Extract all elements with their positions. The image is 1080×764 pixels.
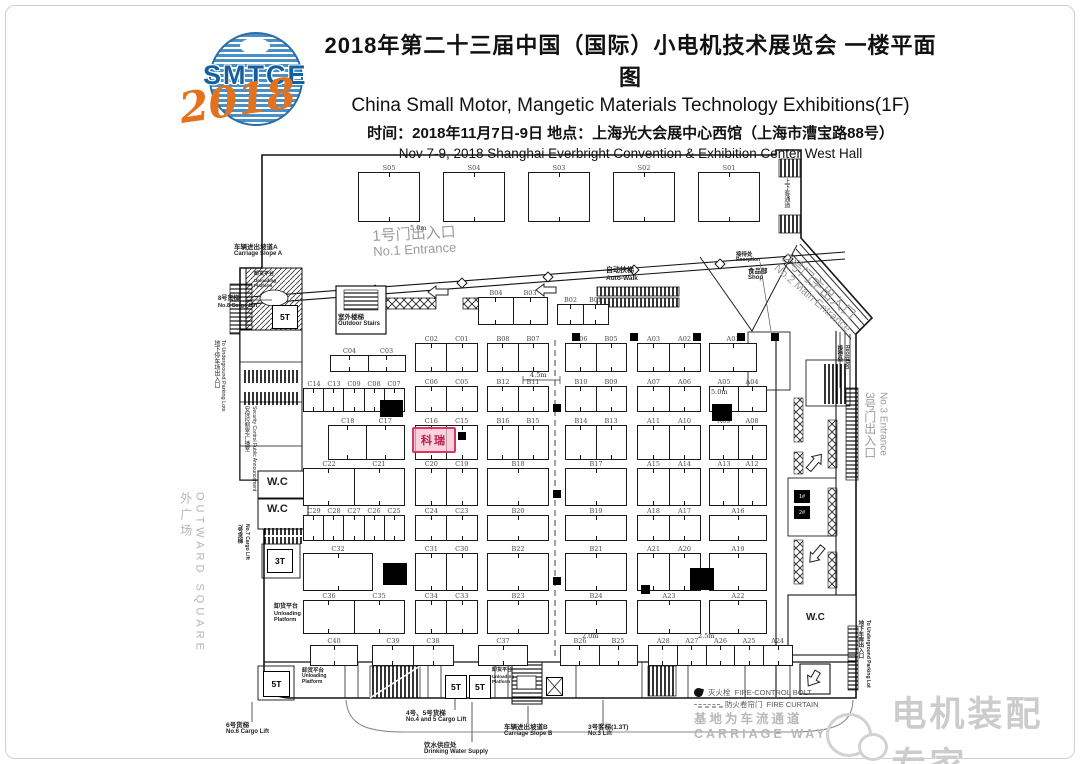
booth-label-row: C29C28C27C26C25 [304,507,404,515]
booth-label-row: B20 [488,507,548,515]
booth-cell [513,298,548,324]
booth-label-row: C22C21 [304,460,404,468]
fire-hydrant-icon [693,686,704,697]
booth-cell [566,426,596,459]
booth-label: C14 [307,380,320,388]
booth-label: A28 [657,637,670,645]
watermark: 电机装配专家 [826,686,1080,764]
label-unloading-top: 卸货平台UnloadingPlatform [254,272,276,288]
label-cn: 地下车库出入口 [857,620,863,688]
booth-C39: C39C38 [372,645,454,666]
watermark-text: 电机装配专家 [891,686,1080,764]
booth-label: A07 [647,378,660,386]
booth-label-row: B12B11 [488,378,548,386]
booth-label-row: C04C03 [331,347,405,355]
label-unloading-b1: 卸货平台UnloadingPlatform [302,668,326,686]
booth-label: C35 [372,592,385,600]
label-cn: 地下停车场出入口 [212,340,219,412]
booth-A01: A01 [709,343,757,372]
label-en: Security Control Public Announcement [250,406,256,491]
label-security-control: 安保控制室/广播室Security Control Public Announc… [243,406,256,491]
label-cargo-lift-4-5: 4号、5号货梯No.4 and 5 Cargo Lift [406,710,466,724]
booth-label-row: B22 [488,545,548,553]
booth-label-row: S02 [614,164,674,172]
booth-B02: B02B01 [557,304,609,325]
booth-label: C01 [455,335,468,343]
booth-cell [596,344,627,371]
booth-cell [566,516,626,540]
booth-cell [323,389,343,411]
booth-label: C21 [372,460,385,468]
booth-label-row: C37 [479,637,527,645]
booth-A28: A28A27A26A25A24 [648,645,793,666]
label-en: No.3 Lift [588,731,628,738]
booth-cell [416,516,446,540]
booth-label: B16 [496,417,509,425]
booth-label: B18 [511,460,524,468]
booth-label-row: S03 [529,164,589,172]
structural-column [553,490,561,498]
booth-label: S05 [383,164,396,172]
booth-label: C16 [425,417,438,425]
cargo-lift-box: 5T [445,675,467,699]
booth-B08: B08B07 [487,343,549,372]
booth-S02: S02 [613,172,675,222]
booth-S05: S05 [358,172,420,222]
booth-C31: C31C30 [415,553,478,591]
booth-cell [354,601,405,633]
booth-cell [710,516,766,540]
booth-cell [699,173,759,221]
booth-cell [368,356,406,371]
structural-column [630,333,638,341]
booth-label: C28 [327,507,340,515]
booth-label: A11 [647,417,660,425]
booth-label-row: B18 [488,460,548,468]
label-unloading-mid: 卸货平台UnloadingPlatform [274,604,301,624]
booth-cell [638,469,669,505]
wechat-bubble-small [858,733,888,761]
booth-cell [566,469,626,505]
booth-B26: B26B25 [560,645,638,666]
booth-label: C13 [327,380,340,388]
booth-B06: B06B05 [565,343,627,372]
booth-cell [329,426,366,459]
wechat-icon [826,711,877,763]
booth-cell [638,601,700,633]
booth-S01: S01 [698,172,760,222]
fire-curtain-icon [694,704,720,705]
label-cargo-lift-7: 7号货梯No.7 Cargo Lift [236,524,249,560]
booth-cell [488,554,548,590]
booth-label: C06 [425,378,438,386]
booth-label: C37 [496,637,509,645]
booth-label: C26 [367,507,380,515]
label-reception-top: 接待处Reception [736,252,760,264]
booth-label-row: C02C01 [416,335,477,343]
booth-label: A19 [732,545,745,553]
booth-A09: A09A08 [709,425,767,460]
booth-label: C04 [343,347,356,355]
booth-B18: B18 [487,468,549,506]
booth-B14: B14B13 [565,425,627,460]
booth-label: A04 [746,378,759,386]
label-no1-entrance: 1号门出入口No.1 Entrance [372,224,457,261]
booth-label: B07 [526,335,539,343]
booth-cell [710,601,766,633]
booth-label-row: B02B01 [558,296,608,304]
booth-label-row: A16 [710,507,766,515]
booth-cell [416,601,446,633]
booth-cell [488,601,548,633]
booth-cell [596,387,627,411]
label-en: Platform [274,617,301,623]
booth-S03: S03 [528,172,590,222]
label-cn: 车辆进出坡道A [234,244,282,251]
label-cn: 外广场 [178,492,192,654]
label-cn: W.C [267,476,288,489]
booth-cell [669,344,701,371]
booth-label: B20 [511,507,524,515]
booth-label: C33 [455,592,468,600]
legend-fire-bolt: 灭火栓 FIRE-CONTROL BOLT [694,686,827,698]
booth-label: B08 [496,335,509,343]
booth-cell [446,469,477,505]
label-cn: 安保控制室/广播室 [243,406,249,491]
booth-C40: C40 [310,645,358,666]
booth-cell [669,426,701,459]
booth-label: C31 [425,545,438,553]
booth-cell [384,516,404,540]
booth-label-row: C40 [311,637,357,645]
booth-label-row: A21A20 [638,545,700,553]
booth-A23: A23 [637,600,701,634]
booth-label-row: C31C30 [416,545,477,553]
booth-cell [488,426,518,459]
label-outdoor-stairs: 室外楼梯Outdoor Stairs [338,314,380,328]
carriage-way-label: 基地为车流通道 CARRIAGE WAY [694,712,827,742]
booth-label-row: C20C19 [416,460,477,468]
label-cn: 接待处 [836,345,842,369]
floorplan-page: { "header": { "title_cn": "2018年第二十三届中国（… [0,0,1080,764]
booth-cell [738,426,767,459]
label-cn: 6号货梯 [226,722,269,729]
booth-cell [669,387,701,411]
booth-cell [304,469,354,505]
booth-label: S04 [468,164,481,172]
booth-label: C18 [341,417,354,425]
label-shop: 食品部Shop [748,268,768,282]
booth-label-row: C14C13C09C08C07 [304,380,404,388]
booth-cell [373,646,413,665]
booth-cell [738,469,767,505]
booth-cell [596,426,627,459]
label-cn: 3号门出入口 [862,392,876,459]
booth-label: B10 [574,378,587,386]
booth-label-row: S01 [699,164,759,172]
structural-column [737,333,745,341]
booth-label-row: B24 [566,592,626,600]
booth-label: C20 [425,460,438,468]
booth-B10: B10B09 [565,386,627,412]
booth-B23: B23 [487,600,549,634]
booth-label: S02 [638,164,651,172]
booth-B12: B12B11 [487,386,549,412]
booth-cell [738,387,767,411]
booth-label: C36 [322,592,335,600]
booth-label: A21 [647,545,660,553]
booth-label-row: A01 [710,335,756,343]
label-cargo-lift-6: 6号货梯No.6 Cargo Lift [226,722,269,736]
booth-cell [518,387,549,411]
booth-label-row: A22 [710,592,766,600]
label-cn: 自动扶梯 [606,267,638,275]
structural-column [771,333,779,341]
booth-cell [734,646,763,665]
booth-label: B19 [589,507,602,515]
structural-column [553,404,561,412]
structural-column [553,577,561,585]
booth-B19: B19 [565,515,627,541]
lift-x-box [546,677,563,696]
label-en: Shop [748,275,768,282]
booth-A16: A16 [709,515,767,541]
booth-label-row: A19 [710,545,766,553]
booth-label: B21 [589,545,602,553]
booth-cell [488,387,518,411]
booth-cell [518,426,549,459]
booth-cell [304,516,323,540]
label-wc-1: W.C [267,476,288,489]
booth-label-row: C34C33 [416,592,477,600]
booth-C06: C06C05 [415,386,478,412]
booth-label-row: B08B07 [488,335,548,343]
legend-fire-curtain: 防火卷帘门 FIRE CURTAIN [694,698,827,710]
label-cn: 4号、5号货梯 [406,710,466,717]
booth-cell [566,554,626,590]
booth-label-row: B23 [488,592,548,600]
booth-cell [304,554,372,590]
booth-label-row: B26B25 [561,637,637,645]
booth-label: A17 [678,507,691,515]
booth-A15: A15A14 [637,468,701,506]
booth-cell [669,469,701,505]
booth-cell [446,387,477,411]
legend-fire-curtain-label: 防火卷帘门 FIRE CURTAIN [725,699,818,710]
booth-label: A03 [647,335,660,343]
label-carriage-slope-a: 车辆进出坡道ACarriage Slope A [234,244,282,258]
booth-B22: B22 [487,553,549,591]
booth-label: C27 [347,507,360,515]
label-en: Drinking Water Supply [424,749,488,756]
label-underground-left: 地下停车场出入口To Underground Parking Lots [212,340,226,412]
booth-label-row: A03A02 [638,335,700,343]
booth-label-row: C16C15 [416,417,477,425]
booth-cell [710,554,766,590]
booth-label: B09 [604,378,617,386]
booth-C32: C32 [303,553,373,591]
booth-label-row: C39C38 [373,637,453,645]
booth-cell [446,516,477,540]
booth-cell [323,516,343,540]
booth-cell [677,646,706,665]
filled-area [383,563,407,585]
label-auto-walk: 自动扶梯Auto-Walk [606,267,638,283]
booth-B17: B17 [565,468,627,506]
booth-label: A08 [746,417,759,425]
booth-C22: C22C21 [303,468,405,506]
booth-label: B05 [604,335,617,343]
label-cn: 卸货平台 [254,272,276,278]
booth-cell [446,344,477,371]
booth-A03: A03A02 [637,343,701,372]
booth-label: A20 [678,545,691,553]
booth-B04: B04B03 [478,297,548,325]
booth-label: A05 [718,378,731,386]
booth-B20: B20 [487,515,549,541]
booth-label: C40 [327,637,340,645]
cargo-lift-box: 5T [263,671,290,697]
filled-area [641,585,650,594]
booth-label: A18 [647,507,660,515]
booth-cell [359,173,419,221]
booth-label: C08 [367,380,380,388]
booth-cell [763,646,792,665]
booth-label: B01 [589,296,602,304]
label-cn: 上下客通道 [782,178,789,208]
booth-label: C03 [380,347,393,355]
booth-C02: C02C01 [415,343,478,372]
booth-label: C02 [425,335,438,343]
booth-A19: A19 [709,553,767,591]
booth-label: B04 [489,289,502,297]
filled-area [712,404,732,421]
booth-label-row: S05 [359,164,419,172]
booth-label: A14 [678,460,691,468]
label-cn: 卸货平台 [274,604,301,611]
label-en: Reception [843,345,849,369]
label-drinking-water: 饮水供应处Drinking Water Supply [424,742,488,756]
booth-label-row: S04 [444,164,504,172]
filled-area [380,400,403,417]
booth-cell [638,516,669,540]
booth-label: S01 [723,164,736,172]
booth-label-row: C24C23 [416,507,477,515]
label-en: To Underground Parking Lot [864,620,870,688]
label-outward-square: 外广场OUTWARD SQUARE [178,492,205,654]
booth-cell [649,646,677,665]
booth-cell [311,646,357,665]
booth-label: A10 [678,417,691,425]
dimension-label: 5.0m [711,388,728,396]
dimension-label: 2.5m [698,632,715,640]
booth-label: B13 [604,417,617,425]
booth-label: C25 [387,507,400,515]
booth-A22: A22 [709,600,767,634]
booth-cell [446,601,477,633]
booth-label-row: C32 [304,545,372,553]
label-en: Platform [254,283,276,288]
label-wc-2: W.C [267,503,288,516]
booth-label: C19 [455,460,468,468]
booth-label: C32 [331,545,344,553]
booth-cell [710,469,738,505]
label-en: No.3 Entrance [877,392,889,459]
booth-C36: C36C35 [303,600,405,634]
label-cn: 食品部 [748,268,768,275]
booth-label-row: B17 [566,460,626,468]
label-cn: 饮水供应处 [424,742,488,749]
structural-column [572,333,580,341]
booth-label: A02 [678,335,691,343]
booth-A11: A11A10 [637,425,701,460]
booth-cell [710,344,756,371]
label-cn: 车辆进出坡道B [504,724,552,731]
booth-C29: C29C28C27C26C25 [303,515,405,541]
label-cn: W.C [806,612,825,624]
booth-cell [331,356,368,371]
structural-column [693,333,701,341]
booth-cell [304,601,354,633]
booth-cell [366,426,404,459]
booth-cell [488,344,518,371]
booth-A07: A07A06 [637,386,701,412]
booth-cell [566,344,596,371]
label-no3-entrance: 3号门出入口No.3 Entrance [862,392,888,459]
booth-label-row: C36C35 [304,592,404,600]
booth-C20: C20C19 [415,468,478,506]
booth-label: A13 [718,460,731,468]
label-carriage-slope-b: 车辆进出坡道BCarriage Slope B [504,724,552,738]
label-en: Platform [492,679,514,684]
booth-label: C38 [426,637,439,645]
booth-A13: A13A12 [709,468,767,506]
cargo-lift-box: 3T [267,549,293,573]
booth-label: A06 [678,378,691,386]
passenger-lift-box: 2# [794,506,810,519]
booth-cell [488,469,548,505]
label-en: Reception [736,258,760,264]
booth-label: B12 [496,378,509,386]
passenger-lift-box: 1# [794,490,810,503]
booth-label: A23 [663,592,676,600]
filled-area [458,432,466,440]
booth-cell [488,516,548,540]
booth-cell [343,516,363,540]
booth-B21: B21 [565,553,627,591]
booth-label-row: B14B13 [566,417,626,425]
booth-cell [416,344,446,371]
booth-cell [566,601,626,633]
booth-cell [343,389,363,411]
booth-cell [558,305,583,324]
label-en: Carriage Slope B [504,731,552,738]
booth-label-row: B10B09 [566,378,626,386]
booth-label-row: B19 [566,507,626,515]
booth-label-row: A13A12 [710,460,766,468]
label-cn: 卸货平台 [492,668,514,674]
booth-label-row: B16B15 [488,417,548,425]
booth-label-row: A05A04 [710,378,766,386]
booth-label: B14 [574,417,587,425]
booth-label: B25 [611,637,624,645]
booth-cell [518,344,549,371]
booth-cell [413,646,454,665]
booth-cell [566,387,596,411]
booth-label-row: A07A06 [638,378,700,386]
booth-label: C24 [425,507,438,515]
booth-cell [561,646,599,665]
